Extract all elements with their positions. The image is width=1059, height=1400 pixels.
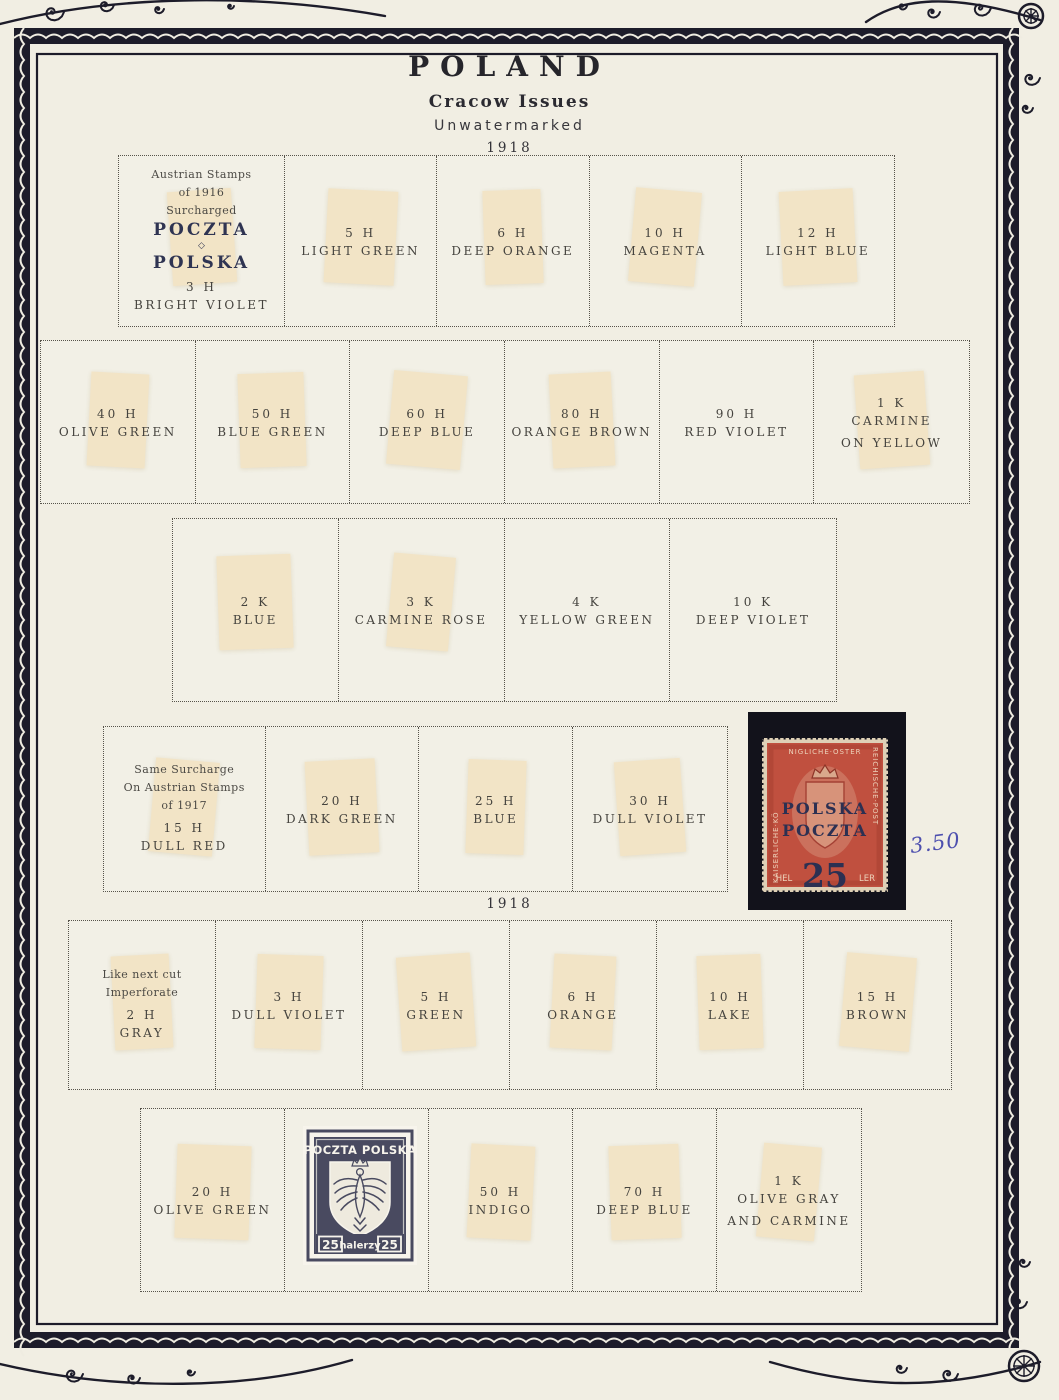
stamp-frame-text-top: NIGLICHE·OSTER [788, 748, 861, 756]
page-title: POLAND [0, 50, 1019, 83]
stamp-space: 2 KBLUE [173, 519, 339, 701]
note-line: Like next cut [102, 967, 181, 983]
color-label: DARK GREEN [286, 810, 398, 830]
denomination-label: 6 H [497, 226, 528, 240]
color-label: OLIVE GREEN [154, 1201, 272, 1221]
color-label: BLUE [233, 611, 278, 631]
stamp-space: 1 KOLIVE GRAYAND CARMINE [717, 1109, 861, 1291]
color-label: RED VIOLET [684, 423, 788, 443]
color-label: DEEP ORANGE [451, 242, 574, 262]
denomination-label: 50 H [252, 407, 294, 421]
denomination-label: 1 K [774, 1174, 803, 1188]
stamp-space: 4 KYELLOW GREEN [505, 519, 671, 701]
stamp-box-3: 2 KBLUE3 KCARMINE ROSE4 KYELLOW GREEN10 … [172, 518, 837, 702]
color-label: GRAY [120, 1024, 165, 1044]
stamp-box-2: 40 HOLIVE GREEN50 HBLUE GREEN60 HDEEP BL… [40, 340, 970, 504]
denomination-label: 3 H [186, 280, 217, 294]
denomination-label: 6 H [568, 990, 599, 1004]
stamp-overprint-line1: POLSKA [782, 799, 868, 818]
stamp-space: Austrian Stampsof 1916SurchargedPOCZTA◇P… [119, 156, 285, 326]
stamp-space: 60 HDEEP BLUE [350, 341, 505, 503]
stamp-space [285, 1109, 429, 1291]
album-page: POLAND Cracow Issues Unwatermarked 1918 … [0, 0, 1059, 1400]
note-line: Imperforate [106, 985, 179, 1001]
stamp-box-6: 20 HOLIVE GREEN50 HINDIGO70 HDEEP BLUE1 … [140, 1108, 862, 1292]
color-label: ORANGE [547, 1006, 618, 1026]
stamp-space: 40 HOLIVE GREEN [41, 341, 196, 503]
stamp-space: 10 HLAKE [657, 921, 804, 1089]
stamp-space: 90 HRED VIOLET [660, 341, 815, 503]
denomination-label: 2 H [127, 1008, 158, 1022]
stamp-space: 15 HBROWN [804, 921, 951, 1089]
watermark-note: Unwatermarked [0, 118, 1019, 134]
stamp-bottom-right-text: LER [859, 874, 875, 884]
denomination-label: 25 H [475, 794, 517, 808]
denomination-label: 15 H [163, 821, 205, 835]
overprint-divider: ◇ [198, 242, 205, 250]
page-subtitle: Cracow Issues [0, 92, 1019, 112]
stamp-bottom-left-text: HEL [776, 874, 793, 884]
stamp-space: Like next cutImperforate2 HGRAY [69, 921, 216, 1089]
color-label: LIGHT GREEN [301, 242, 420, 262]
color-label: BLUE [473, 810, 518, 830]
denomination-label: 20 H [192, 1185, 234, 1199]
color-label: LIGHT BLUE [766, 242, 871, 262]
handwritten-price: 3.50 [909, 828, 962, 858]
denomination-label: 10 K [733, 595, 773, 609]
denomination-label: 40 H [97, 407, 139, 421]
denomination-label: 3 H [274, 990, 305, 1004]
color-label: DEEP BLUE [596, 1201, 693, 1221]
denomination-label: 3 K [406, 595, 435, 609]
color-label: AND CARMINE [727, 1212, 850, 1232]
note-line: Surcharged [166, 203, 237, 219]
stamp-space: 5 HLIGHT GREEN [285, 156, 437, 326]
note-line: of 1917 [161, 798, 207, 814]
stamp-space: 50 HBLUE GREEN [196, 341, 351, 503]
color-label: BROWN [846, 1006, 909, 1026]
stamp-space: 5 HGREEN [363, 921, 510, 1089]
stamp-25h-overprint-image: NIGLICHE·OSTER KAISERLICHE·KÖ REICHISCHE… [748, 712, 906, 910]
denomination-label: 5 H [421, 990, 452, 1004]
stamp-space: 6 HDEEP ORANGE [437, 156, 589, 326]
note-line: of 1916 [179, 185, 225, 201]
denomination-label: 1 K [877, 396, 906, 410]
stamp-space: 3 KCARMINE ROSE [339, 519, 505, 701]
note-line: Austrian Stamps [151, 167, 251, 183]
color-label: ON YELLOW [841, 434, 942, 454]
mounted-stamp: NIGLICHE·OSTER KAISERLICHE·KÖ REICHISCHE… [748, 712, 906, 910]
color-label: GREEN [406, 1006, 465, 1026]
stamp-space: 6 HORANGE [510, 921, 657, 1089]
color-label: INDIGO [468, 1201, 532, 1221]
note-line: On Austrian Stamps [124, 780, 245, 796]
stamp-space: 3 HDULL VIOLET [216, 921, 363, 1089]
stamp-space: 12 HLIGHT BLUE [742, 156, 894, 326]
color-label: LAKE [708, 1006, 752, 1026]
stamp-space: 20 HDARK GREEN [266, 727, 420, 891]
denomination-label: 60 H [406, 407, 448, 421]
denomination-label: 80 H [561, 407, 603, 421]
overprint-bottom: POLSKA [153, 253, 250, 273]
stamp-overprint-value: 25 [802, 856, 848, 895]
stamp-space: 10 KDEEP VIOLET [670, 519, 836, 701]
color-label: DEEP VIOLET [696, 611, 811, 631]
stamp-space: 10 HMAGENTA [590, 156, 742, 326]
stamp-overprint-line2: POCZTA [782, 821, 868, 840]
stamp-frame-text-right: REICHISCHE·POST [871, 747, 879, 825]
denomination-label: 12 H [797, 226, 839, 240]
denomination-label: 15 H [857, 990, 899, 1004]
denomination-label: 4 K [572, 595, 601, 609]
color-label: OLIVE GRAY [737, 1190, 841, 1210]
denomination-label: 5 H [345, 226, 376, 240]
stamp-box-4: Same SurchargeOn Austrian Stampsof 19171… [103, 726, 728, 892]
denomination-label: 20 H [321, 794, 363, 808]
color-label: YELLOW GREEN [519, 611, 654, 631]
stamp-space: 50 HINDIGO [429, 1109, 573, 1291]
color-label: BRIGHT VIOLET [134, 296, 269, 316]
denomination-label: 2 K [241, 595, 270, 609]
color-label: OLIVE GREEN [59, 423, 177, 443]
color-label: CARMINE ROSE [355, 611, 488, 631]
color-label: BLUE GREEN [217, 423, 327, 443]
stamp-space: 20 HOLIVE GREEN [141, 1109, 285, 1291]
denomination-label: 50 H [480, 1185, 522, 1199]
stamp-frame-text-left: KAISERLICHE·KÖ [771, 811, 780, 883]
stamp-space: Same SurchargeOn Austrian Stampsof 19171… [104, 727, 266, 891]
note-line: Same Surcharge [134, 762, 234, 778]
stamp-box-5: Like next cutImperforate2 HGRAY3 HDULL V… [68, 920, 952, 1090]
year-heading-top: 1918 [0, 140, 1019, 156]
denomination-label: 10 H [709, 990, 751, 1004]
stamp-box-1: Austrian Stampsof 1916SurchargedPOCZTA◇P… [118, 155, 895, 327]
color-label: DULL VIOLET [232, 1006, 347, 1026]
denomination-label: 10 H [644, 226, 686, 240]
color-label: DEEP BLUE [379, 423, 476, 443]
color-label: MAGENTA [623, 242, 706, 262]
overprint-top: POCZTA [153, 220, 249, 240]
stamp-space: 30 HDULL VIOLET [573, 727, 727, 891]
stamp-space: 80 HORANGE BROWN [505, 341, 660, 503]
color-label: CARMINE [851, 412, 932, 432]
denomination-label: 70 H [624, 1185, 666, 1199]
stamp-space: 25 HBLUE [419, 727, 573, 891]
color-label: DULL RED [141, 837, 228, 857]
stamp-space: 70 HDEEP BLUE [573, 1109, 717, 1291]
color-label: ORANGE BROWN [511, 423, 652, 443]
color-label: DULL VIOLET [593, 810, 708, 830]
stamp-space: 1 KCARMINEON YELLOW [814, 341, 969, 503]
denomination-label: 90 H [716, 407, 758, 421]
denomination-label: 30 H [629, 794, 671, 808]
